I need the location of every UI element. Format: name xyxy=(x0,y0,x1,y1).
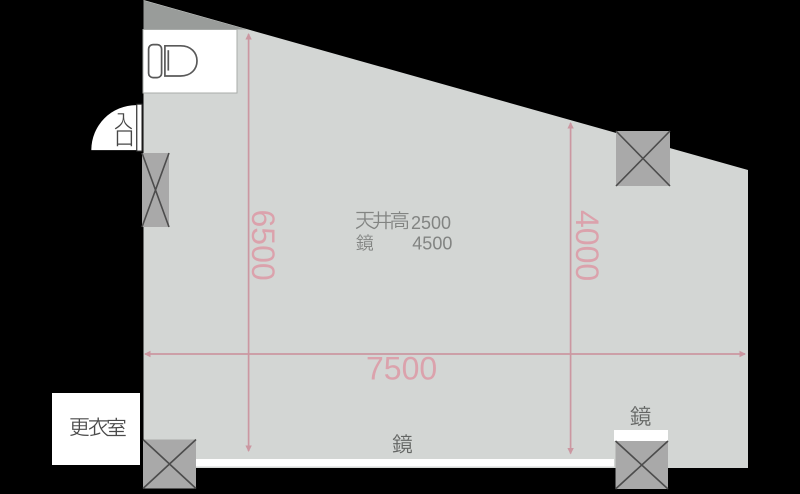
svg-text:4000: 4000 xyxy=(569,210,605,281)
svg-text:4500: 4500 xyxy=(412,233,452,253)
svg-text:7500: 7500 xyxy=(366,351,437,387)
svg-text:6500: 6500 xyxy=(245,210,281,281)
svg-text:2500: 2500 xyxy=(411,213,451,233)
